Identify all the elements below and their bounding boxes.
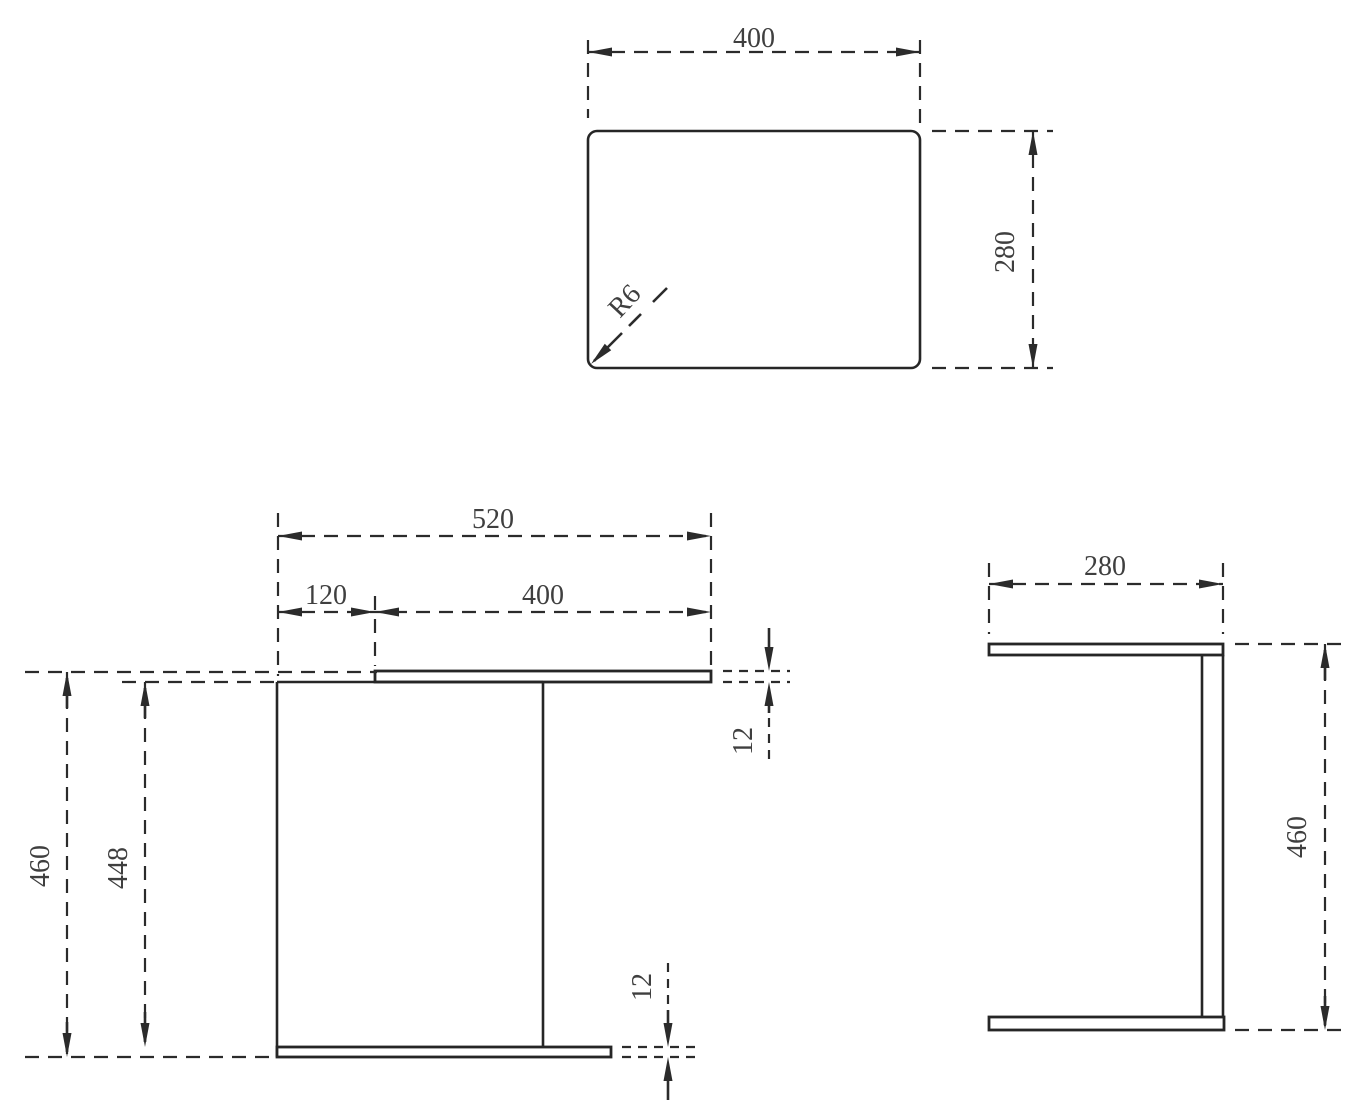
- top-view-panel-outline: [588, 131, 920, 368]
- dim-label-front-overall-height: 460: [25, 845, 56, 887]
- dim-label-front-top-thickness: 12: [728, 727, 759, 755]
- arrowhead-left-icon: [375, 608, 399, 617]
- dim-label-side-height: 460: [1282, 816, 1313, 858]
- leader-dash: [653, 288, 667, 302]
- arrowhead-up-icon: [1029, 131, 1038, 155]
- arrowhead-up-icon: [1321, 644, 1330, 668]
- dim-top-view-depth: 280: [932, 131, 1053, 368]
- arrowhead-right-icon: [896, 48, 920, 57]
- arrowhead-up-icon: [63, 672, 72, 696]
- dim-label-front-top-width: 400: [522, 580, 564, 611]
- dim-front-offset-and-top-width: 120 400: [278, 580, 711, 666]
- front-bottom-slab: [277, 1047, 611, 1057]
- front-top-slab: [375, 671, 711, 682]
- arrowhead-left-icon: [588, 48, 612, 57]
- side-view: 280 460: [989, 551, 1348, 1030]
- arrowhead-right-icon: [687, 532, 711, 541]
- dim-label-front-bottom-thickness: 12: [627, 973, 658, 1001]
- side-bottom-slab: [989, 1017, 1224, 1030]
- dim-side-height: 460: [1235, 644, 1348, 1030]
- dim-label-top-width: 400: [733, 23, 775, 54]
- dim-front-bottom-thickness: 12: [622, 963, 700, 1100]
- arrowhead-down-icon: [141, 1023, 150, 1047]
- arrowhead-up-icon: [141, 682, 150, 706]
- top-view: 400 280 R6: [588, 23, 1053, 368]
- dim-label-front-offset: 120: [305, 580, 347, 611]
- arrowhead-down-icon: [63, 1033, 72, 1057]
- arrowhead-down-icon: [1029, 344, 1038, 368]
- dim-front-top-thickness: 12: [723, 628, 790, 760]
- leader-shaft: [594, 333, 622, 361]
- dim-label-top-depth: 280: [990, 231, 1021, 273]
- arrowhead-down-icon: [765, 647, 774, 671]
- arrowhead-left-icon: [278, 608, 302, 617]
- technical-drawing-page: 400 280 R6: [0, 0, 1368, 1119]
- dim-side-depth: 280: [989, 551, 1223, 634]
- arrowhead-down-icon: [664, 1023, 673, 1047]
- dim-front-overall-height: 460: [25, 672, 377, 1057]
- arrowhead-right-icon: [687, 608, 711, 617]
- technical-drawing-canvas: 400 280 R6: [0, 0, 1368, 1119]
- arrowhead-right-icon: [1199, 580, 1223, 589]
- arrowhead-up-icon: [765, 682, 774, 706]
- arrowhead-up-icon: [664, 1057, 673, 1081]
- front-view: 520 120 400 460: [25, 504, 790, 1100]
- arrowhead-down-icon: [1321, 1006, 1330, 1030]
- dim-label-side-depth: 280: [1084, 551, 1126, 582]
- radius-leader-r6: R6: [591, 279, 667, 364]
- dim-label-corner-radius: R6: [602, 279, 647, 324]
- dim-label-front-overall-width: 520: [472, 504, 514, 535]
- arrowhead-left-icon: [989, 580, 1013, 589]
- dim-top-view-width: 400: [588, 23, 920, 126]
- arrowhead-left-icon: [278, 532, 302, 541]
- dim-front-inner-height: 448: [103, 682, 150, 1047]
- dim-label-front-inner-height: 448: [103, 847, 134, 889]
- side-top-slab: [989, 644, 1223, 655]
- arrowhead-right-icon: [351, 608, 375, 617]
